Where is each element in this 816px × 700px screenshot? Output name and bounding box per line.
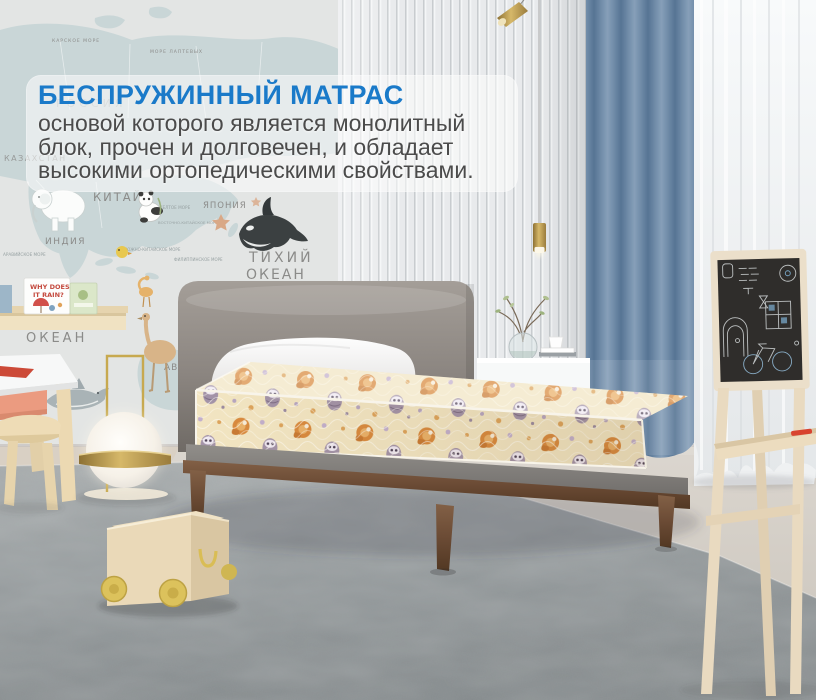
map-label-laptev-sea: МОРЕ ЛАПТЕВЫХ (150, 49, 203, 55)
book-green (70, 283, 97, 314)
chalkboard (717, 258, 802, 382)
product-banner-image: КАРСКОЕ МОРЕ МОРЕ ЛАПТЕВЫХ РОССИЯ КАЗАХС… (0, 0, 816, 700)
map-label-pacific-1: ТИХИЙ (248, 248, 314, 266)
toy-cart (98, 511, 238, 617)
book-blue-partial (0, 285, 12, 313)
promo-title: БЕСПРУЖИННЫЙ МАТРАС (38, 80, 506, 110)
map-label-indian-ocean-2: ОКЕАН (26, 331, 87, 346)
map-label-japan: ЯПОНИЯ (203, 201, 247, 211)
promo-line: блок, прочен и долговечен, и обладает (38, 136, 506, 160)
map-label-arabian-sea: АРАВИЙСКОЕ МОРЕ (3, 252, 46, 257)
map-label-kara-sea: КАРСКОЕ МОРЕ (52, 38, 100, 44)
lamp-sphere (86, 412, 162, 488)
promo-line: основой которого является монолитный (38, 112, 506, 136)
map-label-india: ИНДИЯ (45, 237, 86, 247)
book1-title-line1: WHY DOES (30, 283, 70, 291)
map-label-east-china-sea: ВОСТОЧНО-КИТАЙСКОЕ МОРЕ (158, 220, 218, 225)
cart-wheel (221, 564, 237, 580)
map-label-south-china-sea: ЮЖНО-КИТАЙСКОЕ МОРЕ (126, 247, 181, 252)
book-why-does-it-rain: WHY DOES IT RAIN? (24, 278, 70, 314)
cart-side-face (191, 514, 229, 601)
map-label-yellow-sea: ЖЕЛТОЕ МОРЕ (158, 205, 191, 210)
map-label-pacific-2: ОКЕАН (246, 267, 306, 283)
promo-line: высокими ортопедическими свойствами. (38, 159, 506, 183)
promo-text-overlay: БЕСПРУЖИННЫЙ МАТРАС основой которого явл… (26, 75, 518, 192)
book1-title-line2: IT RAIN? (33, 291, 64, 299)
cup (549, 337, 563, 348)
map-label-philippine-sea: ФИЛИППИНСКОЕ МОРЕ (174, 257, 223, 262)
